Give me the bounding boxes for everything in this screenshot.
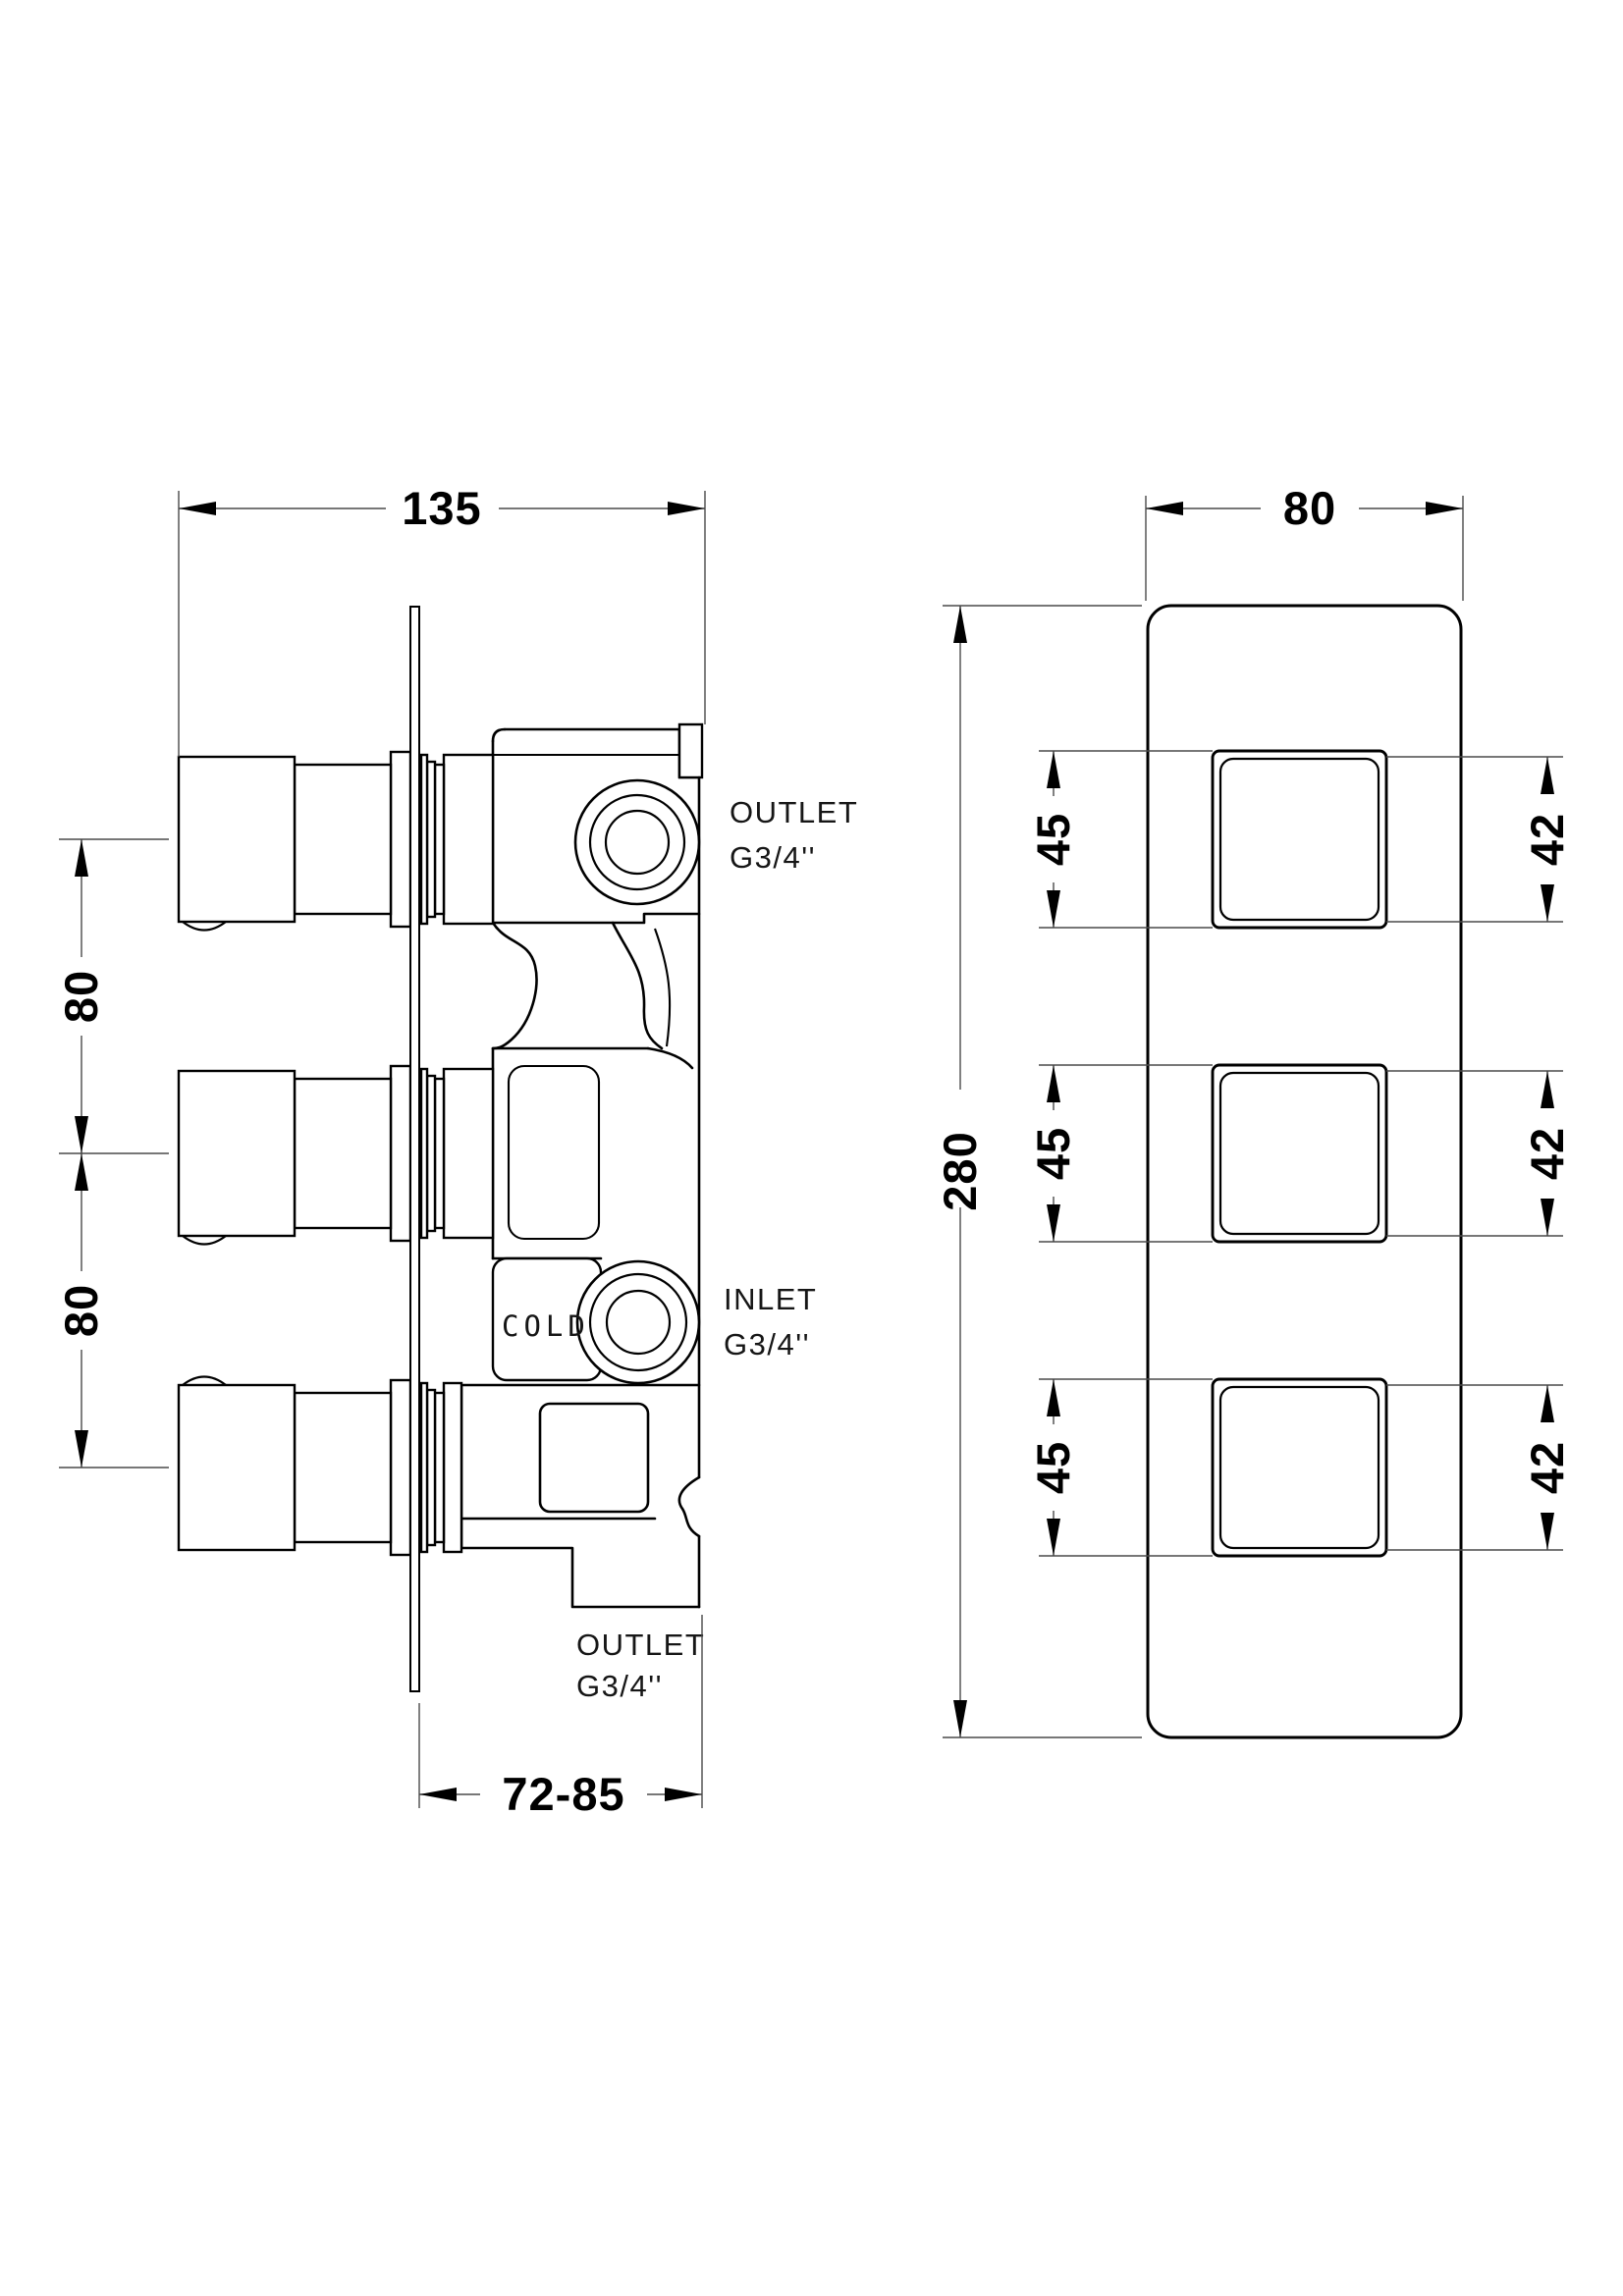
dim-plate-width: 80 [1146,482,1463,601]
outlet-top-size: G3/4'' [730,840,816,875]
handle-stem [295,1393,391,1542]
dim-42-row3-text: 42 [1521,1441,1573,1494]
handle [179,757,295,922]
outlet-bottom-size: G3/4'' [576,1669,663,1703]
grub-screw [183,1377,226,1386]
dim-80-upper-text: 80 [55,970,107,1023]
handle [179,1385,295,1550]
front-button-bottom [1213,1379,1386,1556]
dim-80-lower-text: 80 [55,1284,107,1337]
dim-135-text: 135 [402,482,481,534]
side-view: COLD OUTLET G3/4'' INLET G3/4'' OUTLET G… [55,482,858,1820]
shower-valve-technical-drawing: COLD OUTLET G3/4'' INLET G3/4'' OUTLET G… [0,0,1623,2296]
dim-45-row3-text: 45 [1027,1441,1079,1494]
handle [179,1071,295,1236]
cartridge-housing [509,1066,599,1239]
grub-screw [183,1236,226,1245]
front-button-top [1213,751,1386,928]
dim-42-row1-text: 42 [1521,813,1573,866]
body-top-tab [679,724,702,777]
dim-280-text: 280 [934,1131,986,1210]
front-button-middle [1213,1065,1386,1242]
dim-42-row2-text: 42 [1521,1127,1573,1180]
handle-flange [391,1380,410,1555]
handle-flange [391,1066,410,1241]
inlet-label: INLET [724,1282,817,1316]
handle-stem [295,1079,391,1228]
dim-72-85-text: 72-85 [502,1768,624,1820]
front-view: 80 280 45 42 [934,482,1573,1737]
outlet-port-circles [575,780,699,904]
handle-row-middle [179,1066,493,1245]
grub-screw [183,922,226,931]
handle-flange [391,752,410,927]
outlet-bottom-label: OUTLET [576,1628,705,1662]
inlet-size: G3/4'' [724,1327,810,1362]
body-edge-squiggle [679,1477,699,1536]
dim-handle-spacing: 80 80 [55,839,169,1468]
bottom-outlet-port [540,1404,648,1512]
cold-marking: COLD [502,1309,590,1343]
handle-stem [295,765,391,914]
inlet-port-circles [577,1261,699,1383]
dim-45-row2-text: 45 [1027,1127,1079,1180]
dim-45-row1-text: 45 [1027,813,1079,866]
handle-row-top [179,752,493,931]
outlet-top-label: OUTLET [730,795,858,829]
dim-80-plate-text: 80 [1283,482,1336,534]
wall-plate-side [410,607,419,1691]
dim-overall-width: 135 [179,482,705,757]
technical-drawing-page: COLD OUTLET G3/4'' INLET G3/4'' OUTLET G… [0,0,1623,2296]
